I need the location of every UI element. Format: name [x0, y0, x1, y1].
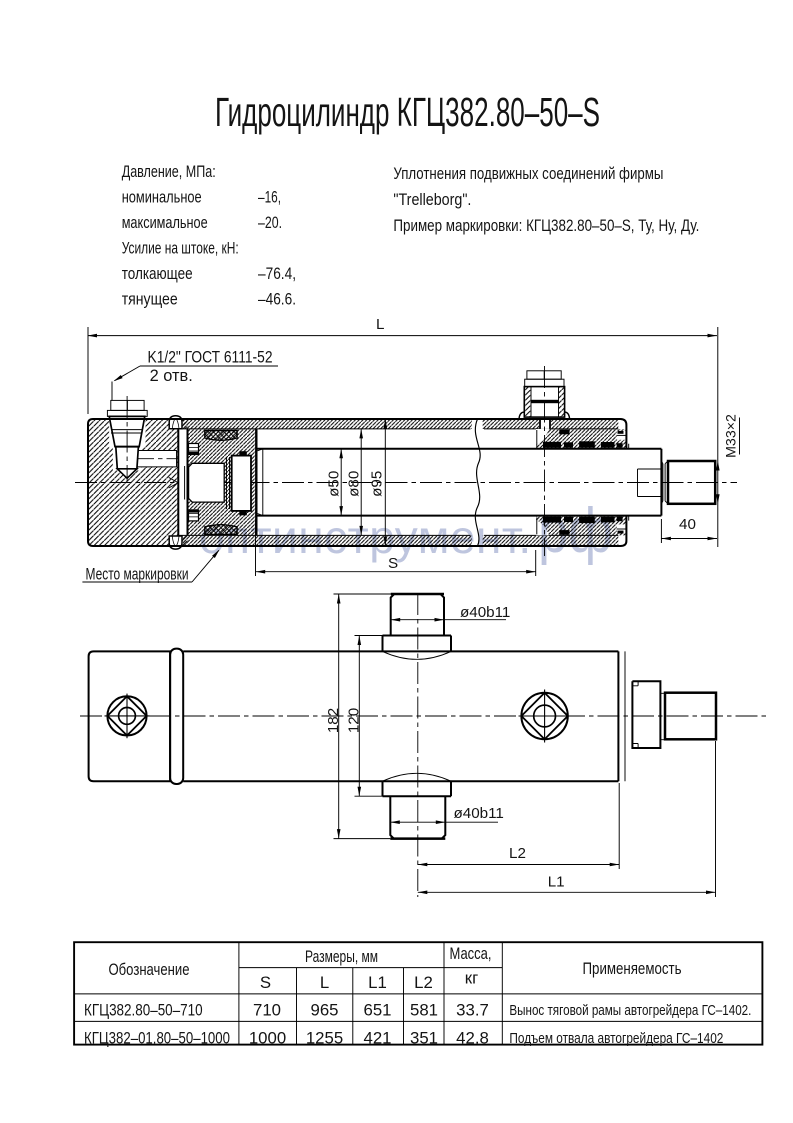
svg-text:–20.: –20.: [258, 214, 282, 232]
svg-text:Применяемость: Применяемость: [583, 959, 682, 978]
svg-text:1000: 1000: [249, 1028, 286, 1047]
svg-text:"Trelleborg".: "Trelleborg".: [393, 191, 471, 209]
svg-text:максимальное: максимальное: [122, 214, 208, 232]
svg-text:кг: кг: [465, 969, 478, 988]
svg-text:Обозначение: Обозначение: [109, 960, 190, 979]
svg-text:–16,: –16,: [258, 189, 281, 207]
svg-text:Место маркировки: Место маркировки: [86, 566, 189, 584]
svg-text:ø40b11: ø40b11: [460, 604, 510, 621]
svg-text:710: 710: [253, 1001, 281, 1020]
svg-text:Подъем отвала автогрейдера ГС–: Подъем отвала автогрейдера ГС–1402: [509, 1030, 723, 1047]
svg-text:КГЦ382–01.80–50–1000: КГЦ382–01.80–50–1000: [84, 1028, 230, 1047]
svg-text:М33×2: М33×2: [724, 414, 740, 458]
svg-text:Размеры, мм: Размеры, мм: [305, 947, 378, 966]
svg-text:толкающее: толкающее: [122, 265, 193, 283]
svg-text:тянущее: тянущее: [122, 291, 178, 309]
svg-text:L: L: [320, 973, 329, 992]
svg-text:581: 581: [410, 1001, 438, 1020]
svg-text:421: 421: [364, 1028, 392, 1047]
svg-text:L: L: [376, 316, 384, 333]
svg-text:Усилие на штоке, кН:: Усилие на штоке, кН:: [122, 240, 239, 258]
svg-text:–46.6.: –46.6.: [258, 291, 296, 309]
svg-text:351: 351: [410, 1028, 438, 1047]
svg-text:L2: L2: [509, 845, 526, 862]
svg-text:ø50: ø50: [325, 471, 342, 497]
svg-text:–76.4,: –76.4,: [258, 265, 296, 283]
svg-text:КГЦ382.80–50–710: КГЦ382.80–50–710: [84, 1001, 203, 1020]
svg-text:120: 120: [346, 708, 363, 733]
svg-text:42.8: 42.8: [456, 1028, 489, 1047]
svg-text:182: 182: [325, 708, 342, 733]
svg-text:L2: L2: [414, 973, 433, 992]
svg-text:Давление, МПа:: Давление, МПа:: [122, 163, 216, 181]
svg-text:1255: 1255: [306, 1028, 343, 1047]
svg-text:ø80: ø80: [345, 471, 362, 497]
svg-text:Уплотнения подвижных соединени: Уплотнения подвижных соединений фирмы: [393, 165, 663, 183]
svg-text:33.7: 33.7: [456, 1001, 489, 1020]
svg-text:ø95: ø95: [368, 471, 385, 497]
svg-text:40: 40: [679, 516, 696, 533]
svg-text:ø40b11: ø40b11: [454, 805, 504, 822]
svg-text:965: 965: [311, 1001, 339, 1020]
svg-text:Пример маркировки: КГЦ382.80–5: Пример маркировки: КГЦ382.80–50–S, Ту, Н…: [393, 217, 699, 235]
svg-text:2 отв.: 2 отв.: [150, 367, 193, 385]
svg-text:Гидроцилиндр КГЦ382.80–50–S: Гидроцилиндр КГЦ382.80–50–S: [215, 89, 600, 135]
svg-text:Масса,: Масса,: [450, 944, 492, 963]
svg-text:L1: L1: [368, 973, 387, 992]
svg-text:номинальное: номинальное: [122, 189, 202, 207]
svg-text:651: 651: [364, 1001, 392, 1020]
svg-text:K1/2" ГОСТ 6111-52: K1/2" ГОСТ 6111-52: [148, 349, 273, 367]
svg-text:S: S: [260, 973, 271, 992]
svg-text:L1: L1: [548, 873, 565, 890]
svg-text:Вынос тяговой рамы автогрейдер: Вынос тяговой рамы автогрейдера ГС–1402.: [509, 1002, 751, 1019]
